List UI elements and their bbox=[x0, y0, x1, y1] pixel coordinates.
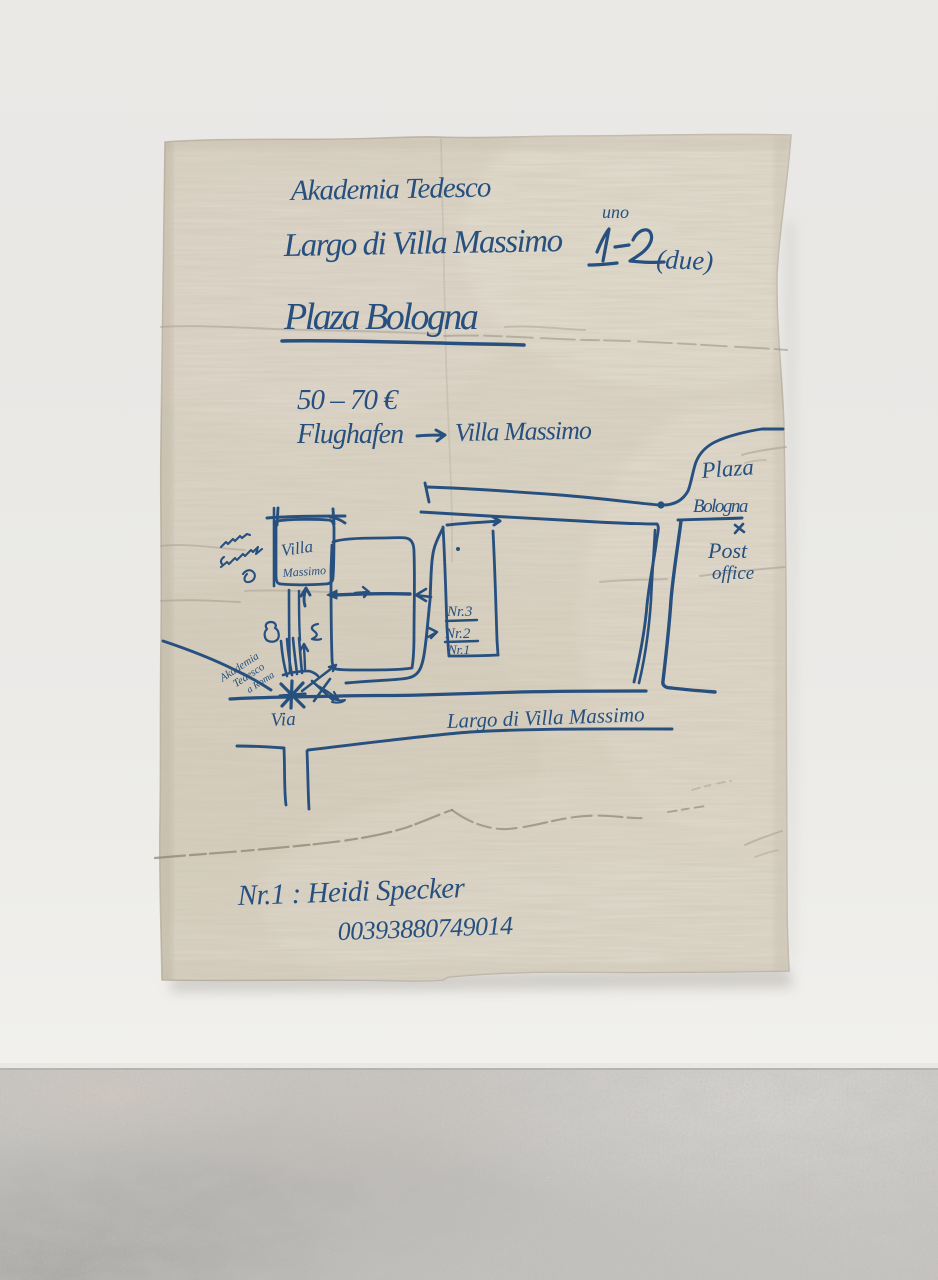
svg-text:Post: Post bbox=[707, 538, 748, 563]
svg-text:Via: Via bbox=[270, 709, 296, 731]
svg-text:Plaza: Plaza bbox=[700, 454, 755, 483]
svg-text:office: office bbox=[712, 563, 754, 584]
svg-text:uno: uno bbox=[602, 202, 629, 222]
svg-text:Largo di Villa Massimo: Largo di Villa Massimo bbox=[283, 223, 563, 264]
svg-text:Villa Massimo: Villa Massimo bbox=[455, 416, 593, 447]
svg-text:Nr.1: Nr.1 bbox=[447, 642, 470, 657]
svg-text:50 – 70 €: 50 – 70 € bbox=[297, 384, 399, 416]
svg-text:Akademia Tedesco: Akademia Tedesco bbox=[289, 172, 492, 208]
svg-text:Bologna: Bologna bbox=[693, 496, 748, 517]
svg-text:Flughafen: Flughafen bbox=[296, 419, 403, 450]
svg-text:00393880749014: 00393880749014 bbox=[337, 911, 513, 946]
svg-text:Nr.2: Nr.2 bbox=[444, 626, 471, 642]
svg-text:(due): (due) bbox=[656, 244, 714, 276]
svg-text:Plaza Bologna: Plaza Bologna bbox=[283, 296, 478, 338]
svg-text:Nr.3: Nr.3 bbox=[446, 604, 472, 620]
